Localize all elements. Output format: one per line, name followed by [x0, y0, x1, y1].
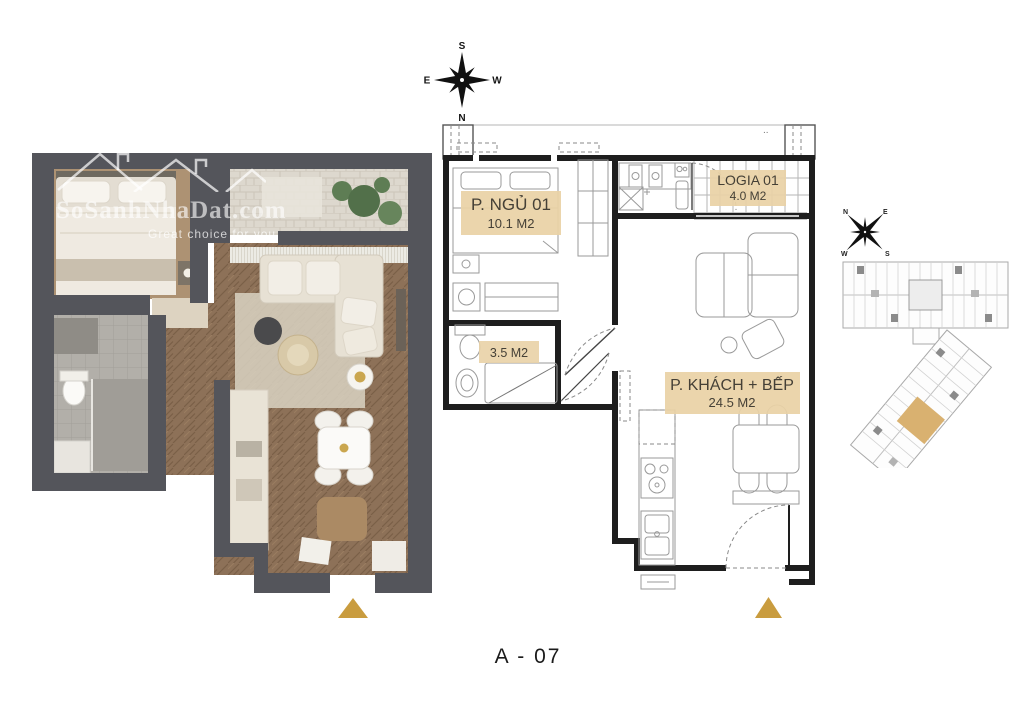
watermark: SoSanhNhaDat.com Great choice for you	[56, 140, 296, 241]
structural-columns	[443, 125, 815, 159]
corner-dots: ..	[763, 125, 769, 136]
key-plan-stem	[913, 328, 939, 344]
watermark-tagline: Great choice for you	[148, 227, 296, 241]
plan-code-label: A - 07	[458, 645, 598, 669]
tv-cabinet-2d	[620, 371, 630, 421]
room-label-living-kitchen: P. KHÁCH + BẾP 24.5 M2	[665, 372, 800, 414]
mini-compass-sw: W	[841, 251, 848, 258]
room-label-bedroom: P. NGỦ 01 10.1 M2	[461, 191, 561, 235]
room-label-bathroom: 3.5 M2	[479, 341, 539, 363]
bathroom-fixtures-2d	[455, 325, 557, 403]
mini-compass-se: S	[885, 251, 890, 258]
room-label-logia: LOGIA 01 4.0 M2	[710, 170, 786, 206]
watermark-brand: SoSanhNhaDat.com	[56, 197, 296, 225]
entrance-door-2d	[726, 505, 789, 568]
svg-text:P. KHÁCH + BẾP: P. KHÁCH + BẾP	[670, 375, 794, 394]
svg-text:4.0 M2: 4.0 M2	[730, 189, 767, 203]
key-plan-diagonal-wing	[851, 330, 992, 468]
svg-text:10.1 M2: 10.1 M2	[488, 216, 535, 231]
dining-set-2d	[733, 405, 799, 504]
mini-compass-icon: N E W S	[835, 200, 901, 268]
compass-top-label: S	[459, 41, 466, 52]
svg-text:P. NGỦ 01: P. NGỦ 01	[471, 195, 551, 214]
mini-compass-nw: N	[843, 209, 848, 216]
sofa-2d	[696, 233, 798, 361]
kitchen-2d	[639, 410, 675, 589]
2d-floor-plan: ..	[433, 113, 825, 625]
entrance-marker-3d	[338, 598, 368, 618]
svg-text:LOGIA 01: LOGIA 01	[717, 172, 779, 188]
key-plan-top-wing	[843, 262, 1008, 328]
hall-doors-2d	[561, 328, 615, 401]
key-plan: N E W S	[835, 200, 1020, 468]
compass-rose-icon: S N E W	[418, 40, 506, 124]
floor-plan-page: S N E W	[0, 0, 1024, 724]
hall-floor-3d	[166, 303, 214, 475]
mini-compass-ne: E	[883, 209, 888, 216]
laundry-fixtures	[619, 163, 691, 210]
svg-text:3.5 M2: 3.5 M2	[490, 346, 528, 360]
entrance-marker-2d	[755, 597, 782, 618]
compass-left-label: E	[424, 76, 431, 87]
compass-right-label: W	[492, 76, 502, 87]
watermark-houses-icon	[56, 140, 266, 192]
bedroom-furniture-2d	[453, 160, 608, 311]
svg-text:24.5 M2: 24.5 M2	[709, 395, 756, 410]
